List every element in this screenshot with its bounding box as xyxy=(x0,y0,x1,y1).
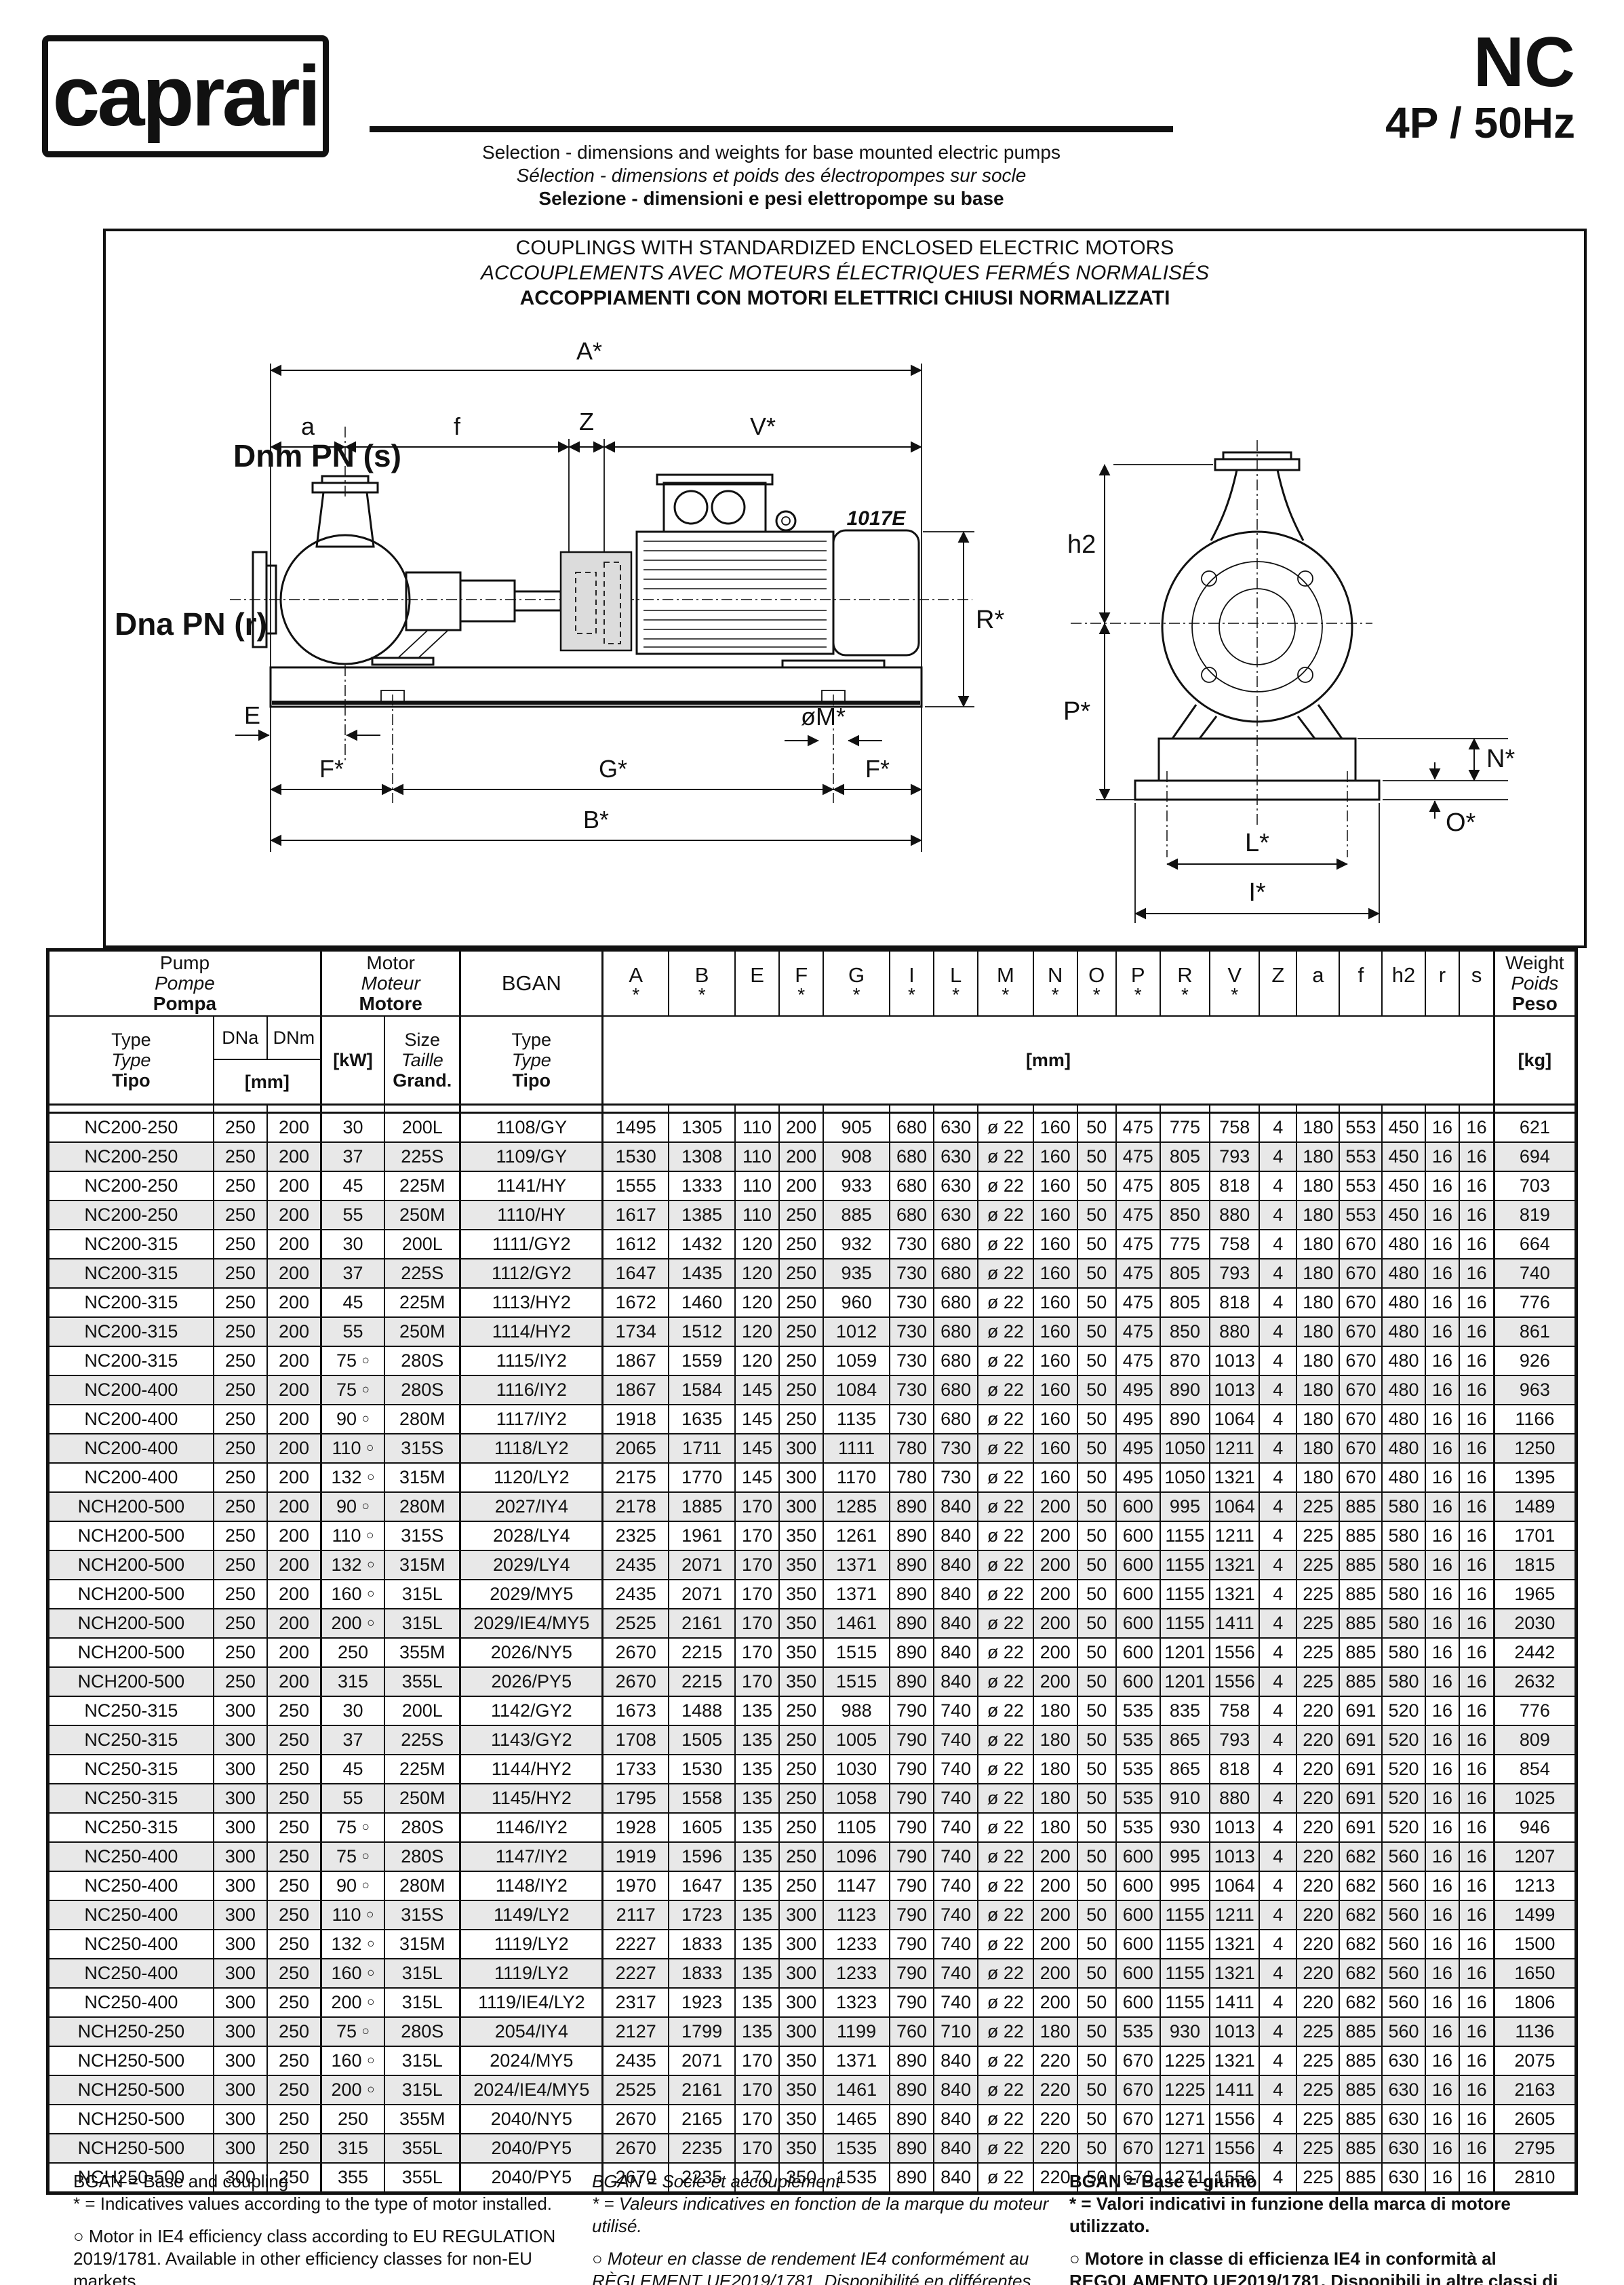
cell-O: 50 xyxy=(1077,1667,1116,1696)
cell-dna: 250 xyxy=(214,1638,267,1667)
cell-bgan-type: 1115/IY2 xyxy=(460,1346,603,1375)
cell-bgan-type: 1111/GY2 xyxy=(460,1230,603,1259)
diagram-titles: COUPLINGS WITH STANDARDIZED ENCLOSED ELE… xyxy=(106,235,1584,311)
cell-F: 200 xyxy=(779,1113,823,1143)
cell-a: 180 xyxy=(1296,1346,1339,1375)
col-header-L: L* xyxy=(934,950,978,1017)
cell-motor-size: 200L xyxy=(384,1696,460,1725)
cell-O: 50 xyxy=(1077,1550,1116,1580)
cell-R: 805 xyxy=(1160,1259,1210,1288)
cell-bgan-type: 1148/IY2 xyxy=(460,1871,603,1900)
cell-R: 1155 xyxy=(1160,1900,1210,1930)
dim-label-f: f xyxy=(454,412,461,440)
cell-N: 180 xyxy=(1033,1696,1077,1725)
cell-G: 1323 xyxy=(823,1988,890,2017)
cell-s: 16 xyxy=(1459,1784,1494,1813)
cell-kw: 37 xyxy=(321,1142,384,1171)
cell-weight: 776 xyxy=(1494,1696,1576,1725)
cell-pump-type: NC200-315 xyxy=(48,1230,214,1259)
cell-dna: 250 xyxy=(214,1317,267,1346)
footnote-en-ie4: ○ Motor in IE4 efficiency class accordin… xyxy=(73,2225,578,2285)
cell-Z: 4 xyxy=(1259,1813,1296,1842)
cell-V: 793 xyxy=(1210,1259,1259,1288)
cell-B: 1305 xyxy=(669,1113,735,1143)
cell-V: 1556 xyxy=(1210,1667,1259,1696)
table-sub-header-row: Type Type Tipo DNa DNm [mm] [kW xyxy=(48,1016,1577,1105)
cell-kw: 37 xyxy=(321,1725,384,1755)
cell-pump-type: NCH250-500 xyxy=(48,2134,214,2163)
cell-M: ø 22 xyxy=(978,1317,1033,1346)
cell-pump-type: NCH200-500 xyxy=(48,1580,214,1609)
cell-motor-size: 280S xyxy=(384,1375,460,1405)
cell-B: 1885 xyxy=(669,1492,735,1521)
cell-dnm: 200 xyxy=(267,1580,321,1609)
cell-r: 16 xyxy=(1425,1813,1460,1842)
table-row: NCH250-500300250200 ○315L2024/IE4/MY5252… xyxy=(48,2075,1577,2105)
dim-label-E: E xyxy=(244,701,260,729)
dim-label-F1: F* xyxy=(319,755,344,783)
cell-V: 1321 xyxy=(1210,1550,1259,1580)
cell-B: 1923 xyxy=(669,1988,735,2017)
cell-f: 682 xyxy=(1339,1959,1382,1988)
table-row: NC200-31525020045225M1113/HY216721460120… xyxy=(48,1288,1577,1317)
cell-kw: 200 ○ xyxy=(321,1609,384,1638)
cell-N: 200 xyxy=(1033,1900,1077,1930)
cell-M: ø 22 xyxy=(978,1346,1033,1375)
col-header-dn: DNa DNm [mm] xyxy=(214,1016,321,1105)
cell-Z: 4 xyxy=(1259,1434,1296,1463)
cell-L: 740 xyxy=(934,1871,978,1900)
cell-R: 995 xyxy=(1160,1842,1210,1871)
cell-A: 2325 xyxy=(603,1521,669,1550)
cell-motor-size: 225M xyxy=(384,1755,460,1784)
cell-h2: 560 xyxy=(1382,1930,1425,1959)
cell-a: 180 xyxy=(1296,1375,1339,1405)
cell-A: 2435 xyxy=(603,1550,669,1580)
cell-I: 730 xyxy=(890,1259,934,1288)
col-header-type: Type Type Tipo xyxy=(48,1016,214,1105)
table-row: NC250-400300250160 ○315L1119/LY222271833… xyxy=(48,1959,1577,1988)
cell-f: 682 xyxy=(1339,1988,1382,2017)
cell-P: 475 xyxy=(1116,1317,1160,1346)
cell-B: 1833 xyxy=(669,1959,735,1988)
cell-r: 16 xyxy=(1425,2075,1460,2105)
cell-weight: 1136 xyxy=(1494,2017,1576,2046)
cell-O: 50 xyxy=(1077,1725,1116,1755)
cell-B: 1505 xyxy=(669,1725,735,1755)
cell-a: 180 xyxy=(1296,1230,1339,1259)
table-row: NCH200-500250200250355M2026/NY5267022151… xyxy=(48,1638,1577,1667)
cell-dnm: 250 xyxy=(267,1784,321,1813)
cell-R: 1271 xyxy=(1160,2134,1210,2163)
cell-V: 793 xyxy=(1210,1142,1259,1171)
cell-A: 2670 xyxy=(603,2105,669,2134)
cell-f: 885 xyxy=(1339,1667,1382,1696)
cell-r: 16 xyxy=(1425,1959,1460,1988)
cell-h2: 480 xyxy=(1382,1346,1425,1375)
cell-O: 50 xyxy=(1077,1113,1116,1143)
cell-weight: 2605 xyxy=(1494,2105,1576,2134)
cell-G: 1461 xyxy=(823,2075,890,2105)
cell-dna: 300 xyxy=(214,1930,267,1959)
cell-h2: 580 xyxy=(1382,1667,1425,1696)
cell-M: ø 22 xyxy=(978,1696,1033,1725)
cell-s: 16 xyxy=(1459,1463,1494,1492)
cell-P: 475 xyxy=(1116,1230,1160,1259)
caprari-logo: caprari xyxy=(42,35,329,157)
cell-R: 1155 xyxy=(1160,1550,1210,1580)
cell-E: 135 xyxy=(735,1871,779,1900)
table-row: NC200-400250200132 ○315M1120/LY221751770… xyxy=(48,1463,1577,1492)
cell-h2: 630 xyxy=(1382,2105,1425,2134)
cell-E: 170 xyxy=(735,1609,779,1638)
cell-weight: 809 xyxy=(1494,1725,1576,1755)
cell-E: 110 xyxy=(735,1113,779,1143)
cell-P: 535 xyxy=(1116,1813,1160,1842)
cell-R: 890 xyxy=(1160,1375,1210,1405)
cell-I: 730 xyxy=(890,1346,934,1375)
cell-M: ø 22 xyxy=(978,1200,1033,1230)
cell-bgan-type: 1119/LY2 xyxy=(460,1959,603,1988)
cell-motor-size: 225S xyxy=(384,1142,460,1171)
cell-f: 682 xyxy=(1339,1900,1382,1930)
cell-pump-type: NCH200-500 xyxy=(48,1609,214,1638)
cell-P: 600 xyxy=(1116,1492,1160,1521)
cell-B: 1385 xyxy=(669,1200,735,1230)
cell-G: 1030 xyxy=(823,1755,890,1784)
dim-label-L: L* xyxy=(1245,829,1269,857)
cell-G: 1012 xyxy=(823,1317,890,1346)
motor-code-label: 1017E xyxy=(847,507,907,530)
cell-bgan-type: 1118/LY2 xyxy=(460,1434,603,1463)
cell-L: 740 xyxy=(934,1813,978,1842)
cell-dna: 300 xyxy=(214,2105,267,2134)
cell-A: 1612 xyxy=(603,1230,669,1259)
cell-pump-type: NC250-315 xyxy=(48,1784,214,1813)
cell-L: 680 xyxy=(934,1405,978,1434)
cell-motor-size: 225M xyxy=(384,1171,460,1200)
cell-A: 1495 xyxy=(603,1113,669,1143)
cell-O: 50 xyxy=(1077,1959,1116,1988)
cell-f: 670 xyxy=(1339,1317,1382,1346)
cell-motor-size: 250M xyxy=(384,1200,460,1230)
cell-I: 790 xyxy=(890,1930,934,1959)
cell-f: 670 xyxy=(1339,1375,1382,1405)
cell-I: 730 xyxy=(890,1230,934,1259)
cell-h2: 560 xyxy=(1382,1842,1425,1871)
cell-M: ø 22 xyxy=(978,1959,1033,1988)
cell-F: 350 xyxy=(779,2075,823,2105)
cell-L: 840 xyxy=(934,1609,978,1638)
cell-B: 2071 xyxy=(669,1580,735,1609)
cell-pump-type: NC200-250 xyxy=(48,1200,214,1230)
cell-h2: 520 xyxy=(1382,1725,1425,1755)
cell-f: 885 xyxy=(1339,2105,1382,2134)
cell-A: 2435 xyxy=(603,2046,669,2075)
cell-Z: 4 xyxy=(1259,1317,1296,1346)
cell-dnm: 200 xyxy=(267,1434,321,1463)
logo-text: caprari xyxy=(52,54,318,139)
cell-motor-size: 280S xyxy=(384,1813,460,1842)
cell-V: 1321 xyxy=(1210,2046,1259,2075)
cell-s: 16 xyxy=(1459,1492,1494,1521)
cell-V: 1321 xyxy=(1210,1580,1259,1609)
cell-I: 790 xyxy=(890,1813,934,1842)
cell-N: 200 xyxy=(1033,1609,1077,1638)
col-header-s: s xyxy=(1459,950,1494,1017)
cell-a: 220 xyxy=(1296,1755,1339,1784)
cell-Z: 4 xyxy=(1259,1405,1296,1434)
cell-weight: 1499 xyxy=(1494,1900,1576,1930)
cell-N: 180 xyxy=(1033,2017,1077,2046)
cell-pump-type: NCH250-500 xyxy=(48,2075,214,2105)
cell-I: 790 xyxy=(890,1842,934,1871)
cell-weight: 1500 xyxy=(1494,1930,1576,1959)
cell-N: 160 xyxy=(1033,1113,1077,1143)
cell-h2: 450 xyxy=(1382,1171,1425,1200)
cell-h2: 520 xyxy=(1382,1813,1425,1842)
cell-dna: 300 xyxy=(214,1988,267,2017)
cell-pump-type: NC250-400 xyxy=(48,1871,214,1900)
cell-r: 16 xyxy=(1425,1609,1460,1638)
cell-a: 225 xyxy=(1296,1667,1339,1696)
cell-dna: 250 xyxy=(214,1492,267,1521)
cell-weight: 2163 xyxy=(1494,2075,1576,2105)
cell-F: 350 xyxy=(779,2105,823,2134)
cell-kw: 45 xyxy=(321,1755,384,1784)
cell-I: 790 xyxy=(890,1900,934,1930)
cell-B: 1584 xyxy=(669,1375,735,1405)
cell-P: 600 xyxy=(1116,1550,1160,1580)
cell-N: 200 xyxy=(1033,1492,1077,1521)
cell-V: 880 xyxy=(1210,1784,1259,1813)
cell-kw: 37 xyxy=(321,1259,384,1288)
cell-pump-type: NC200-315 xyxy=(48,1317,214,1346)
cell-weight: 2442 xyxy=(1494,1638,1576,1667)
cell-pump-type: NC250-315 xyxy=(48,1755,214,1784)
cell-L: 840 xyxy=(934,1638,978,1667)
cell-G: 905 xyxy=(823,1113,890,1143)
cell-G: 1371 xyxy=(823,1550,890,1580)
cell-P: 495 xyxy=(1116,1375,1160,1405)
cell-R: 865 xyxy=(1160,1755,1210,1784)
cell-motor-size: 315S xyxy=(384,1521,460,1550)
cell-Z: 4 xyxy=(1259,1580,1296,1609)
dim-label-B: B* xyxy=(583,806,609,834)
cell-dnm: 250 xyxy=(267,1755,321,1784)
cell-r: 16 xyxy=(1425,1113,1460,1143)
cell-dna: 300 xyxy=(214,1725,267,1755)
cell-M: ø 22 xyxy=(978,2075,1033,2105)
cell-R: 995 xyxy=(1160,1871,1210,1900)
cell-L: 730 xyxy=(934,1463,978,1492)
cell-E: 170 xyxy=(735,2046,779,2075)
cell-s: 16 xyxy=(1459,1696,1494,1725)
cell-dna: 250 xyxy=(214,1580,267,1609)
cell-E: 135 xyxy=(735,1900,779,1930)
cell-r: 16 xyxy=(1425,1930,1460,1959)
cell-pump-type: NCH200-500 xyxy=(48,1492,214,1521)
cell-R: 775 xyxy=(1160,1113,1210,1143)
cell-P: 670 xyxy=(1116,2134,1160,2163)
cell-F: 300 xyxy=(779,1959,823,1988)
group-header-bgan: BGAN xyxy=(460,950,603,1017)
cell-dna: 300 xyxy=(214,1842,267,1871)
cell-I: 680 xyxy=(890,1142,934,1171)
cell-dna: 300 xyxy=(214,1784,267,1813)
cell-dnm: 200 xyxy=(267,1550,321,1580)
cell-L: 680 xyxy=(934,1346,978,1375)
cell-O: 50 xyxy=(1077,1259,1116,1288)
cell-F: 300 xyxy=(779,1492,823,1521)
cell-M: ø 22 xyxy=(978,1230,1033,1259)
cell-O: 50 xyxy=(1077,1871,1116,1900)
cell-dnm: 250 xyxy=(267,2134,321,2163)
cell-L: 740 xyxy=(934,1988,978,2017)
cell-V: 818 xyxy=(1210,1171,1259,1200)
cell-I: 890 xyxy=(890,1550,934,1580)
cell-R: 1155 xyxy=(1160,1580,1210,1609)
cell-N: 220 xyxy=(1033,2105,1077,2134)
cell-r: 16 xyxy=(1425,1521,1460,1550)
cell-O: 50 xyxy=(1077,2105,1116,2134)
cell-f: 691 xyxy=(1339,1755,1382,1784)
cell-pump-type: NCH250-500 xyxy=(48,2105,214,2134)
cell-E: 135 xyxy=(735,1725,779,1755)
cell-M: ø 22 xyxy=(978,1842,1033,1871)
cell-r: 16 xyxy=(1425,1842,1460,1871)
cell-N: 180 xyxy=(1033,1784,1077,1813)
col-header-G: G* xyxy=(823,950,890,1017)
cell-R: 1201 xyxy=(1160,1667,1210,1696)
cell-L: 740 xyxy=(934,1784,978,1813)
cell-E: 120 xyxy=(735,1230,779,1259)
cell-motor-size: 315S xyxy=(384,1900,460,1930)
cell-B: 1530 xyxy=(669,1755,735,1784)
cell-R: 1201 xyxy=(1160,1638,1210,1667)
table-row: NC200-25025020055250M1110/HY161713851102… xyxy=(48,1200,1577,1230)
cell-P: 600 xyxy=(1116,1638,1160,1667)
cell-F: 200 xyxy=(779,1142,823,1171)
cell-weight: 819 xyxy=(1494,1200,1576,1230)
footnote-fr-asterisk: * = Valeurs indicatives en fonction de l… xyxy=(592,2193,1060,2238)
cell-V: 1556 xyxy=(1210,2134,1259,2163)
dim-label-A: A* xyxy=(576,337,602,365)
cell-h2: 560 xyxy=(1382,1900,1425,1930)
cell-a: 180 xyxy=(1296,1171,1339,1200)
table-row: NC200-31525020030200L1111/GY216121432120… xyxy=(48,1230,1577,1259)
cell-N: 180 xyxy=(1033,1725,1077,1755)
cell-V: 758 xyxy=(1210,1230,1259,1259)
cell-a: 225 xyxy=(1296,1638,1339,1667)
cell-bgan-type: 1146/IY2 xyxy=(460,1813,603,1842)
cell-pump-type: NCH200-500 xyxy=(48,1550,214,1580)
cell-B: 1605 xyxy=(669,1813,735,1842)
cell-a: 225 xyxy=(1296,1521,1339,1550)
cell-s: 16 xyxy=(1459,1638,1494,1667)
cell-B: 1961 xyxy=(669,1521,735,1550)
cell-dnm: 250 xyxy=(267,1959,321,1988)
footnote-fr-ie4: ○ Moteur en classe de rendement IE4 conf… xyxy=(592,2248,1060,2285)
cell-dna: 250 xyxy=(214,1550,267,1580)
col-header-O: O* xyxy=(1077,950,1116,1017)
cell-f: 885 xyxy=(1339,1550,1382,1580)
col-header-E: E xyxy=(735,950,779,1017)
diagram-box: COUPLINGS WITH STANDARDIZED ENCLOSED ELE… xyxy=(103,229,1587,948)
cell-s: 16 xyxy=(1459,1521,1494,1550)
cell-dna: 300 xyxy=(214,1871,267,1900)
cell-r: 16 xyxy=(1425,1696,1460,1725)
cell-bgan-type: 1108/GY xyxy=(460,1113,603,1143)
cell-motor-size: 280S xyxy=(384,2017,460,2046)
cell-f: 691 xyxy=(1339,1784,1382,1813)
cell-I: 890 xyxy=(890,1609,934,1638)
cell-L: 740 xyxy=(934,1842,978,1871)
cell-kw: 110 ○ xyxy=(321,1434,384,1463)
cell-h2: 480 xyxy=(1382,1259,1425,1288)
cell-V: 1064 xyxy=(1210,1405,1259,1434)
dim-label-a: a xyxy=(301,412,315,440)
cell-A: 1970 xyxy=(603,1871,669,1900)
cell-N: 200 xyxy=(1033,1638,1077,1667)
cell-a: 220 xyxy=(1296,1842,1339,1871)
cell-A: 2117 xyxy=(603,1900,669,1930)
cell-h2: 560 xyxy=(1382,2017,1425,2046)
cell-G: 1058 xyxy=(823,1784,890,1813)
cell-B: 2235 xyxy=(669,2134,735,2163)
cell-a: 225 xyxy=(1296,2075,1339,2105)
cell-kw: 200 ○ xyxy=(321,2075,384,2105)
cell-motor-size: 355M xyxy=(384,2105,460,2134)
cell-E: 135 xyxy=(735,1930,779,1959)
cell-G: 1233 xyxy=(823,1930,890,1959)
cell-motor-size: 315L xyxy=(384,1959,460,1988)
cell-dnm: 200 xyxy=(267,1142,321,1171)
cell-F: 350 xyxy=(779,1667,823,1696)
cell-s: 16 xyxy=(1459,1434,1494,1463)
cell-f: 885 xyxy=(1339,1521,1382,1550)
cell-pump-type: NC200-250 xyxy=(48,1113,214,1143)
table-row: NC200-40025020075 ○280S1116/IY2186715841… xyxy=(48,1375,1577,1405)
cell-h2: 580 xyxy=(1382,1580,1425,1609)
cell-E: 135 xyxy=(735,2017,779,2046)
cell-F: 250 xyxy=(779,1259,823,1288)
cell-f: 682 xyxy=(1339,1871,1382,1900)
cell-R: 910 xyxy=(1160,1784,1210,1813)
cell-M: ø 22 xyxy=(978,1405,1033,1434)
cell-bgan-type: 1147/IY2 xyxy=(460,1842,603,1871)
cell-A: 1928 xyxy=(603,1813,669,1842)
cell-a: 180 xyxy=(1296,1200,1339,1230)
cell-P: 495 xyxy=(1116,1405,1160,1434)
table-row: NC250-31530025075 ○280S1146/IY2192816051… xyxy=(48,1813,1577,1842)
cell-M: ø 22 xyxy=(978,1375,1033,1405)
cell-P: 475 xyxy=(1116,1171,1160,1200)
cell-L: 680 xyxy=(934,1259,978,1288)
cell-kw: 315 xyxy=(321,1667,384,1696)
cell-O: 50 xyxy=(1077,1288,1116,1317)
cell-G: 1199 xyxy=(823,2017,890,2046)
cell-weight: 621 xyxy=(1494,1113,1576,1143)
cell-dnm: 250 xyxy=(267,1871,321,1900)
cell-A: 2227 xyxy=(603,1959,669,1988)
cell-Z: 4 xyxy=(1259,1871,1296,1900)
cell-P: 600 xyxy=(1116,1900,1160,1930)
cell-f: 670 xyxy=(1339,1288,1382,1317)
cell-weight: 1965 xyxy=(1494,1580,1576,1609)
cell-motor-size: 315L xyxy=(384,2075,460,2105)
table-row: NC200-25025020030200L1108/GY149513051102… xyxy=(48,1113,1577,1143)
